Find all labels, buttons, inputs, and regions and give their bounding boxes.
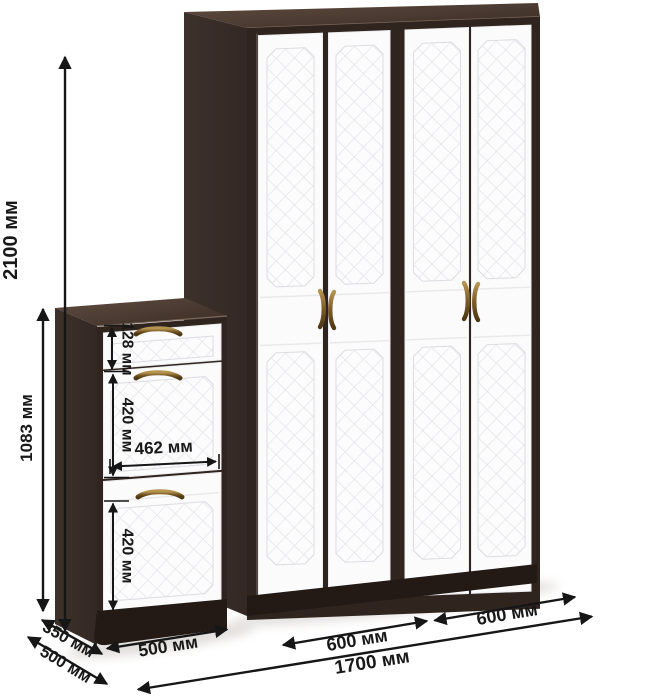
- furniture-scene: 2100 мм 1083 мм 128 мм 420 мм 462 мм 4: [0, 0, 648, 700]
- door-quilt-panel: [414, 42, 461, 282]
- dim-lower-door-height-label: 420 мм: [119, 529, 136, 584]
- door-quilt-panel: [414, 346, 461, 560]
- dim-upper-door-height-label: 420 мм: [119, 398, 136, 453]
- door-quilt-panel: [267, 47, 314, 287]
- dim-cabinet-height-label: 1083 мм: [17, 394, 36, 462]
- dim-door-width-label: 462 мм: [134, 436, 193, 458]
- front-left-edge-highlight: [256, 34, 258, 604]
- cabinet-front-face: [97, 317, 227, 625]
- cabinet-side-face: [55, 308, 97, 645]
- dim-wardrobe-height-label: 2100 мм: [0, 200, 22, 280]
- door-quilt-panel: [478, 39, 525, 279]
- door-quilt-panel: [478, 343, 525, 557]
- wardrobe-front-face: [247, 17, 540, 620]
- door-quilt-panel: [336, 349, 383, 563]
- dim-drawer-height-label: 128 мм: [119, 322, 136, 375]
- door-quilt-panel: [267, 351, 314, 565]
- product-dimension-diagram: 2100 мм 1083 мм 128 мм 420 мм 462 мм 4: [0, 0, 648, 700]
- door-quilt-panel: [336, 45, 383, 285]
- shoe-cabinet: [55, 298, 227, 645]
- wardrobe: [184, 3, 540, 620]
